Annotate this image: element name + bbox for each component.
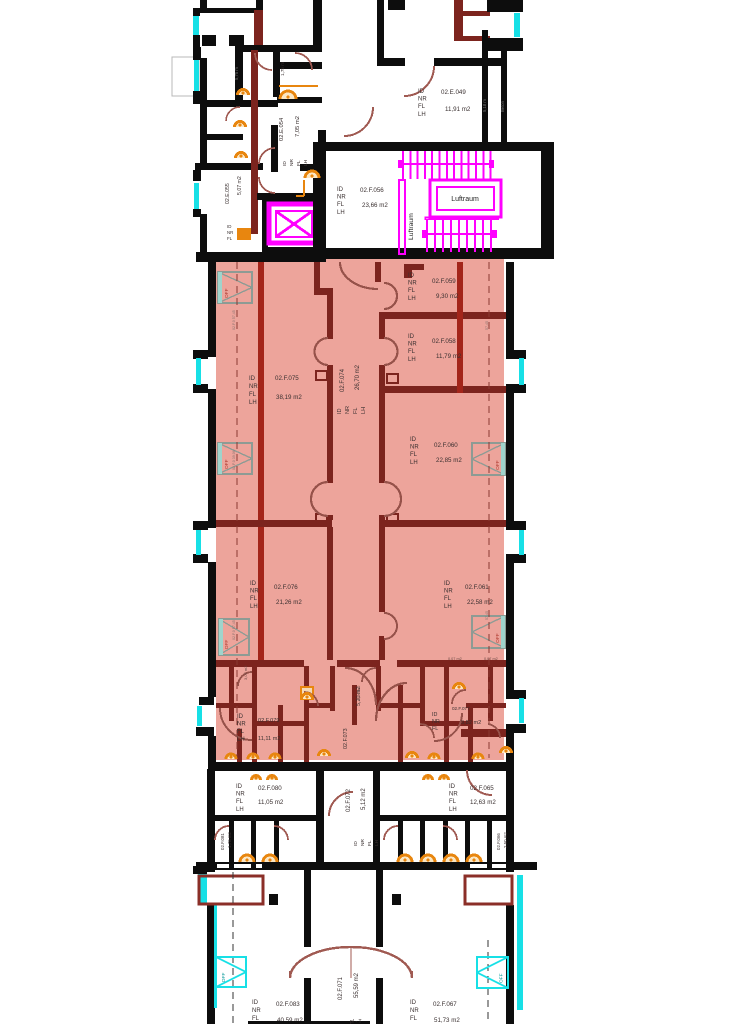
svg-text:02.E.054: 02.E.054 [279,117,285,141]
svg-text:ID: ID [237,714,244,720]
svg-text:ID: ID [432,712,437,718]
svg-text:FL: FL [410,452,418,458]
svg-text:1,75 m: 1,75 m [280,62,285,76]
svg-text:02.F.071: 02.F.071 [338,976,344,1000]
svg-text:FL: FL [418,104,426,110]
svg-text:11,79 m2: 11,79 m2 [436,353,462,360]
svg-text:5,07 m2: 5,07 m2 [237,176,243,195]
svg-text:FL: FL [353,407,359,414]
svg-text:LH: LH [449,807,457,813]
svg-text:ID: ID [282,161,288,166]
svg-text:Luftraum: Luftraum [451,196,479,203]
svg-text:02.F.056: 02.F.056 [360,187,384,194]
svg-text:NR: NR [410,445,419,451]
svg-text:ID: ID [337,408,343,414]
svg-text:NR: NR [252,1008,261,1014]
svg-text:FL: FL [237,729,245,735]
svg-text:OFF: OFF [498,973,504,983]
svg-text:LH: LH [361,407,367,414]
svg-text:02.F.065: 02.F.065 [470,785,494,792]
svg-text:NR: NR [360,839,366,846]
svg-text:FL: FL [227,236,233,241]
svg-text:02.F.083: 02.F.083 [276,1001,300,1008]
svg-text:02.F.061: 02.F.061 [465,584,489,591]
svg-text:FL: FL [449,799,457,805]
svg-text:02.F.074: 02.F.074 [340,368,346,392]
svg-text:NR: NR [237,722,246,728]
svg-text:02.F.0 57,45: 02.F.0 57,45 [232,620,236,640]
svg-text:Beton: Beton [500,100,505,112]
svg-text:LH: LH [337,210,345,216]
svg-text:3,07 m2: 3,07 m2 [243,665,248,680]
svg-text:5,12 m2: 5,12 m2 [361,788,367,810]
svg-text:FL: FL [408,349,416,355]
svg-text:9,30 m2: 9,30 m2 [436,293,459,300]
svg-text:02.F.075: 02.F.075 [275,375,299,382]
svg-text:ID: ID [444,581,451,587]
svg-text:23,66 m2: 23,66 m2 [362,202,388,209]
svg-text:p! - T: p! - T [350,1019,362,1024]
svg-text:NR: NR [236,792,245,798]
svg-text:ID: ID [353,841,359,846]
svg-text:57,45: 57,45 [485,321,489,330]
svg-text:11,91 m2: 11,91 m2 [445,106,471,113]
svg-text:26,70 m2: 26,70 m2 [355,364,361,390]
svg-text:FL: FL [444,596,452,602]
svg-text:LH: LH [410,460,418,466]
svg-text:OFF: OFF [221,973,227,983]
svg-text:LH: LH [444,604,452,610]
svg-text:22,58 m2: 22,58 m2 [467,599,493,606]
svg-text:2,50 m2: 2,50 m2 [503,832,508,848]
svg-text:21,26 m2: 21,26 m2 [276,599,302,606]
svg-text:ID: ID [449,784,456,790]
svg-text:FL: FL [236,799,244,805]
svg-text:OFF: OFF [224,288,230,298]
svg-text:OFF: OFF [224,640,230,650]
svg-text:NR: NR [418,97,427,103]
svg-text:OFF: OFF [495,460,501,470]
svg-text:LH: LH [408,296,416,302]
svg-text:ID: ID [252,1000,259,1006]
svg-text:OFF: OFF [495,633,501,643]
svg-text:NR: NR [289,159,295,166]
svg-text:FL: FL [250,596,258,602]
svg-text:22,85 m2: 22,85 m2 [436,457,462,464]
svg-text:ID: ID [337,187,344,193]
svg-text:02.E.055: 02.E.055 [225,183,231,204]
svg-text:02.F.067: 02.F.067 [433,1001,457,1008]
svg-text:FL: FL [410,1016,418,1022]
svg-text:NR: NR [227,230,233,235]
svg-text:51,73 m2: 51,73 m2 [434,1017,460,1024]
svg-text:12,63 m2: 12,63 m2 [470,799,496,806]
svg-text:ID: ID [250,581,257,587]
svg-text:NR: NR [410,1008,419,1014]
svg-text:11,11 m2: 11,11 m2 [258,736,281,742]
svg-text:02.F.072: 02.F.072 [346,788,352,812]
svg-text:02.E.049: 02.E.049 [441,89,466,96]
svg-text:NR: NR [444,589,453,595]
svg-text:1,78 m2: 1,78 m2 [227,832,232,848]
svg-text:FL: FL [296,160,302,166]
svg-text:Luftraum: Luftraum [408,213,415,240]
svg-text:7,05 m2: 7,05 m2 [295,116,301,137]
svg-text:ID: ID [227,224,231,229]
svg-text:LH: LH [237,737,245,743]
svg-text:02.F.079: 02.F.079 [258,718,279,724]
svg-text:02.F.0 57,45: 02.F.0 57,45 [232,310,236,330]
svg-text:0,07 m2: 0,07 m2 [484,657,498,661]
svg-text:5,75 m: 5,75 m [234,67,239,80]
svg-text:NR: NR [408,281,417,287]
svg-text:5,18 m: 5,18 m [482,99,487,112]
svg-text:38,19 m2: 38,19 m2 [276,394,302,401]
svg-text:LH: LH [408,357,416,363]
svg-text:02.F.080: 02.F.080 [258,785,282,792]
svg-text:FL: FL [249,392,257,398]
svg-text:FL: FL [337,202,345,208]
svg-text:02.F.060: 02.F.060 [434,442,458,449]
svg-text:NR: NR [449,792,458,798]
svg-text:02.F.081: 02.F.081 [220,833,225,850]
svg-text:02.F.058: 02.F.058 [432,338,456,345]
svg-text:02.F.076: 02.F.076 [274,584,298,591]
svg-text:LH: LH [418,112,426,118]
svg-text:02.F.077: 02.F.077 [452,706,470,711]
svg-text:ID: ID [236,784,243,790]
svg-text:02.F.059: 02.F.059 [432,278,456,285]
svg-text:57,45: 57,45 [485,611,489,620]
svg-text:LH: LH [250,604,258,610]
svg-text:NR: NR [249,384,258,390]
svg-text:NR: NR [432,719,440,725]
svg-text:LH: LH [249,400,257,406]
svg-text:9,82 m2: 9,82 m2 [461,720,481,726]
svg-text:FL: FL [367,840,373,846]
svg-text:02.F.066: 02.F.066 [496,833,501,850]
svg-text:ID: ID [418,89,425,95]
svg-text:55,59 m2: 55,59 m2 [354,972,360,998]
svg-text:02.F.073: 02.F.073 [343,728,349,749]
svg-text:NR: NR [408,342,417,348]
svg-text:02.F.0 39,06: 02.F.0 39,06 [232,450,236,470]
svg-text:NR: NR [250,589,259,595]
svg-text:FL: FL [408,288,416,294]
svg-text:ID: ID [408,334,415,340]
svg-text:0,07 m2: 0,07 m2 [448,657,462,661]
svg-text:LH: LH [303,159,309,166]
svg-text:LH: LH [374,839,380,846]
svg-text:ID: ID [249,376,256,382]
svg-text:LH: LH [236,807,244,813]
svg-text:NR: NR [337,195,346,201]
svg-text:11,05 m2: 11,05 m2 [258,799,284,806]
svg-text:FL: FL [432,726,438,732]
svg-text:ID: ID [408,273,415,279]
svg-text:6,20 m2: 6,20 m2 [356,685,361,700]
svg-text:NR: NR [345,406,351,414]
svg-text:OFF: OFF [224,459,230,469]
svg-text:ID: ID [410,1000,417,1006]
svg-text:ID: ID [410,437,417,443]
